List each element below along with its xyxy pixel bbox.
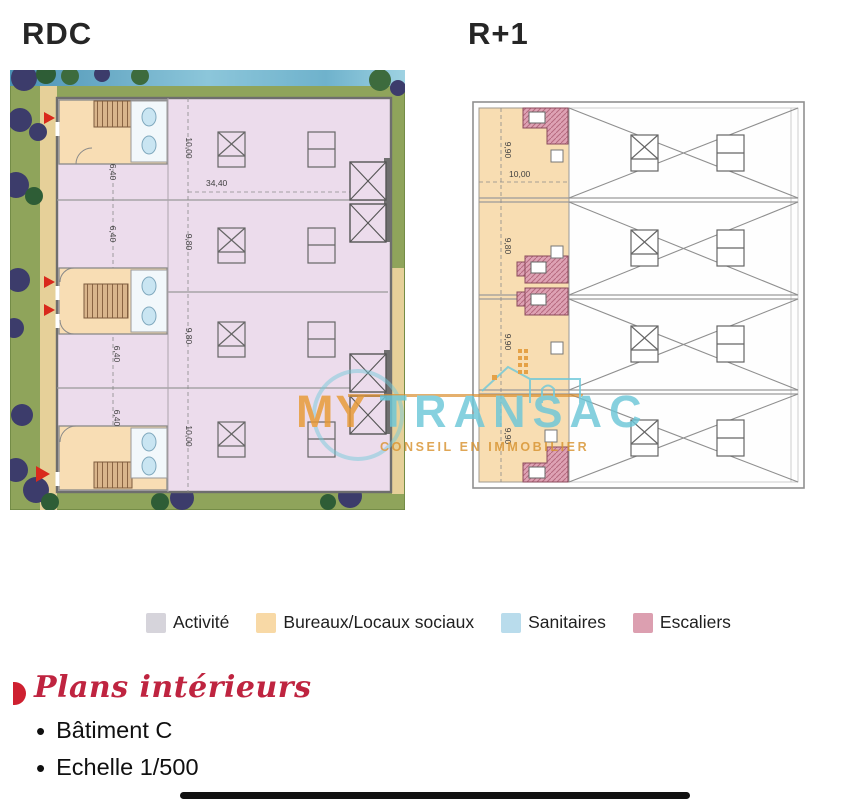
legend-item-escaliers: Escaliers — [633, 612, 731, 633]
floor-plan-r1: 10,00 9,90 9,80 9,90 9,90 — [471, 98, 808, 492]
legend-item-sanitaires: Sanitaires — [501, 612, 606, 633]
escaliers-color-swatch — [633, 613, 653, 633]
sanitaires-color-swatch — [501, 613, 521, 633]
page: RDC R+1 — [0, 0, 866, 800]
path-strip-right — [392, 268, 404, 494]
dim-label: 9,80 — [503, 238, 513, 255]
legend-item-bureaux: Bureaux/Locaux sociaux — [256, 612, 474, 633]
bullet-dot-icon: • — [36, 755, 45, 781]
stairs — [94, 462, 132, 488]
dim-label: 6,40 — [112, 346, 122, 363]
bullet-label: Bâtiment C — [56, 712, 172, 749]
path-strip-left — [40, 86, 57, 510]
dim-label: 6,40 — [108, 226, 118, 243]
legend-item-activite: Activité — [146, 612, 229, 633]
bottom-handle-bar[interactable] — [180, 792, 690, 799]
bullet-item-batiment: • Bâtiment C — [36, 712, 199, 749]
r1-floor-title: R+1 — [468, 16, 529, 52]
activity-color-swatch — [146, 613, 166, 633]
legend-label: Bureaux/Locaux sociaux — [283, 612, 474, 633]
section-marker-icon — [13, 682, 26, 705]
bullet-dot-icon: • — [36, 718, 45, 744]
section-heading: Plans intérieurs — [34, 670, 312, 705]
office-rooms — [56, 100, 168, 490]
dim-label: 9,90 — [503, 334, 513, 351]
dim-label: 34,40 — [206, 178, 228, 188]
bullet-label: Echelle 1/500 — [56, 749, 198, 786]
stairs — [84, 284, 128, 318]
dim-label: 10,00 — [184, 425, 194, 447]
bullet-item-echelle: • Echelle 1/500 — [36, 749, 199, 786]
stairs — [94, 101, 132, 127]
dim-label: 6,40 — [108, 164, 118, 181]
footer-bullets: • Bâtiment C • Echelle 1/500 — [36, 712, 199, 786]
dim-label: 9,90 — [503, 428, 513, 445]
dim-label: 10,00 — [509, 169, 531, 179]
legend: Activité Bureaux/Locaux sociaux Sanitair… — [146, 612, 731, 633]
dim-label: 6,40 — [112, 410, 122, 427]
dim-label: 9,80 — [184, 234, 194, 251]
legend-label: Escaliers — [660, 612, 731, 633]
bureaux-color-swatch — [256, 613, 276, 633]
dim-label: 10,00 — [184, 137, 194, 159]
legend-label: Sanitaires — [528, 612, 606, 633]
dim-label: 9,90 — [503, 142, 513, 159]
legend-label: Activité — [173, 612, 229, 633]
rdc-floor-title: RDC — [22, 16, 92, 52]
floor-plan-rdc: 34,40 10,00 9,80 9,80 10,00 6,40 6,40 6,… — [10, 70, 405, 510]
dim-label: 9,80 — [184, 328, 194, 345]
